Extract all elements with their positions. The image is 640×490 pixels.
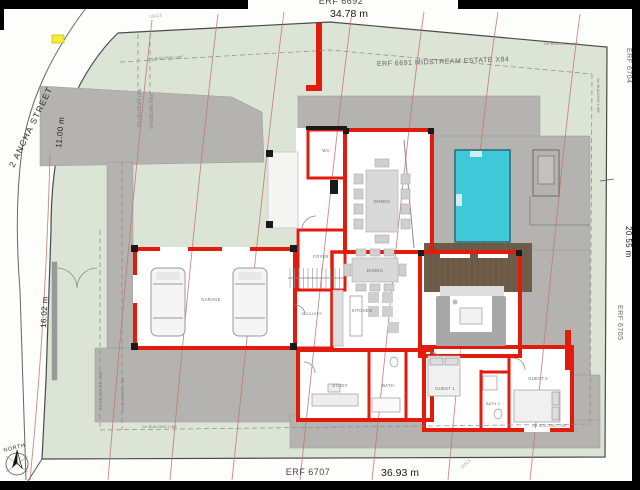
- boundary-fence: [52, 262, 57, 380]
- site-plan-screenshot: ERF 6692 34.78 m 1522.5 ERF 6691 MIDSTRE…: [0, 0, 640, 490]
- bl-topleft35-label: 3.5m BUILDING LINE: [138, 88, 142, 127]
- study-label: STUDY: [332, 383, 347, 388]
- porch-floor: [268, 152, 298, 228]
- frame-right: [632, 0, 640, 490]
- erf-right-top-label: ERF 6704: [625, 48, 632, 84]
- frame-bottom: [0, 481, 640, 490]
- dim-left-label: 16.02 m: [39, 296, 50, 328]
- side-paving: [107, 162, 133, 380]
- bl-topleft5-label: 5m BUILDING LINE: [150, 93, 154, 129]
- wc-label: WC: [322, 148, 329, 153]
- car-2: [233, 268, 267, 336]
- foyer-label: FOYER: [313, 254, 329, 259]
- pool-skimmer: [456, 194, 462, 206]
- bl-topright-label: 2m BUILDING LINE: [544, 42, 580, 46]
- bl-left35-label: 3.5m BUILDING LINE: [99, 371, 103, 410]
- bath-label: BATH: [382, 383, 394, 388]
- bl-right-label: 2m BUILDING LINE: [596, 78, 600, 114]
- dim-top-label: 34.78 m: [330, 8, 368, 20]
- erf-right-bottom-label: ERF 6705: [616, 305, 623, 341]
- bl-bottomleft-label: 2m BUILDING LINE: [142, 425, 178, 429]
- south-wing-floor: [296, 350, 432, 420]
- highlight-marker: [52, 35, 64, 43]
- garage-label: GARAGE: [201, 297, 220, 302]
- car-1: [151, 268, 185, 336]
- frame-top-left: [0, 0, 248, 9]
- guest1-label: GUEST 1: [435, 386, 455, 391]
- dining-upper-label: DINING: [374, 199, 390, 204]
- scullery-label: SCULLERY: [302, 312, 323, 316]
- swimming-pool: [455, 150, 510, 242]
- guest2-bed: [514, 390, 560, 422]
- site-plan-svg: ERF 6692 34.78 m 1522.5 ERF 6691 MIDSTRE…: [0, 0, 640, 490]
- lounge-couch: [436, 286, 506, 346]
- dining-label: DINING: [367, 268, 383, 273]
- frame-top-right: [458, 0, 640, 9]
- kitchen-label: KITCHEN: [352, 308, 372, 313]
- erf-top-label: ERF 6692: [319, 0, 364, 6]
- main-floor: [296, 128, 432, 350]
- south-paving-left: [95, 348, 308, 422]
- dim-bottom-label: 36.93 m: [381, 467, 419, 479]
- frame-left-corner: [0, 0, 4, 30]
- water-feature-inner: [538, 156, 554, 184]
- guest2-label: GUEST 2: [528, 376, 548, 381]
- bl-left5-label: 5m BUILDING LINE: [121, 376, 125, 412]
- bl-bottomright-label: 2m BUILDING LINE: [532, 424, 568, 428]
- erf-bottom-label: ERF 6707: [286, 467, 331, 477]
- bath2-label: BATH 2: [486, 402, 500, 406]
- pool-step: [470, 151, 482, 157]
- dim-right-label: 20.55 m: [624, 226, 633, 258]
